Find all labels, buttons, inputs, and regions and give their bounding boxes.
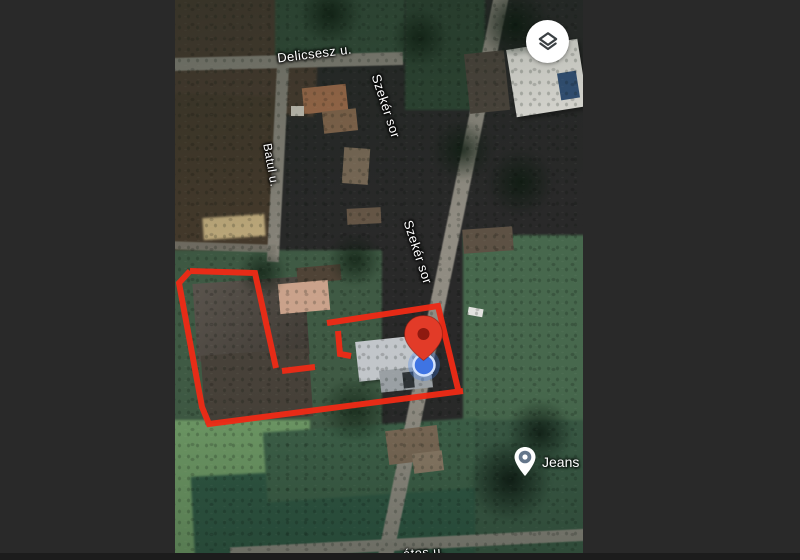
street-label-partial-bottom: átos u. <box>403 544 446 553</box>
poi-jeans[interactable]: Jeans <box>513 446 579 478</box>
street-label-szeker-sor-1: Szekér sor <box>369 72 404 140</box>
barn-building <box>201 348 313 423</box>
poi-pin-icon <box>513 446 537 478</box>
solar-panels <box>557 71 580 101</box>
building <box>412 450 444 474</box>
poi-label: Jeans <box>542 454 579 470</box>
building <box>464 50 510 114</box>
tree <box>315 380 395 440</box>
screenshot-root: Delicsesz u. Szekér sor Szekér sor Batul… <box>0 0 800 560</box>
tree <box>390 10 450 65</box>
building <box>342 147 370 185</box>
tree <box>485 150 555 215</box>
layers-button[interactable] <box>526 20 569 63</box>
building <box>347 207 382 225</box>
car <box>402 371 415 388</box>
map-canvas[interactable]: Delicsesz u. Szekér sor Szekér sor Batul… <box>175 0 583 553</box>
hay-pile <box>202 214 265 240</box>
layers-icon <box>536 30 560 54</box>
tree <box>325 235 385 285</box>
tree <box>430 120 495 180</box>
building <box>462 226 514 253</box>
tree <box>235 250 290 295</box>
street-label-szeker-sor-2: Szekér sor <box>401 218 436 286</box>
building <box>278 280 330 314</box>
building <box>322 108 358 133</box>
bottom-bar <box>0 553 800 560</box>
building <box>291 106 304 116</box>
